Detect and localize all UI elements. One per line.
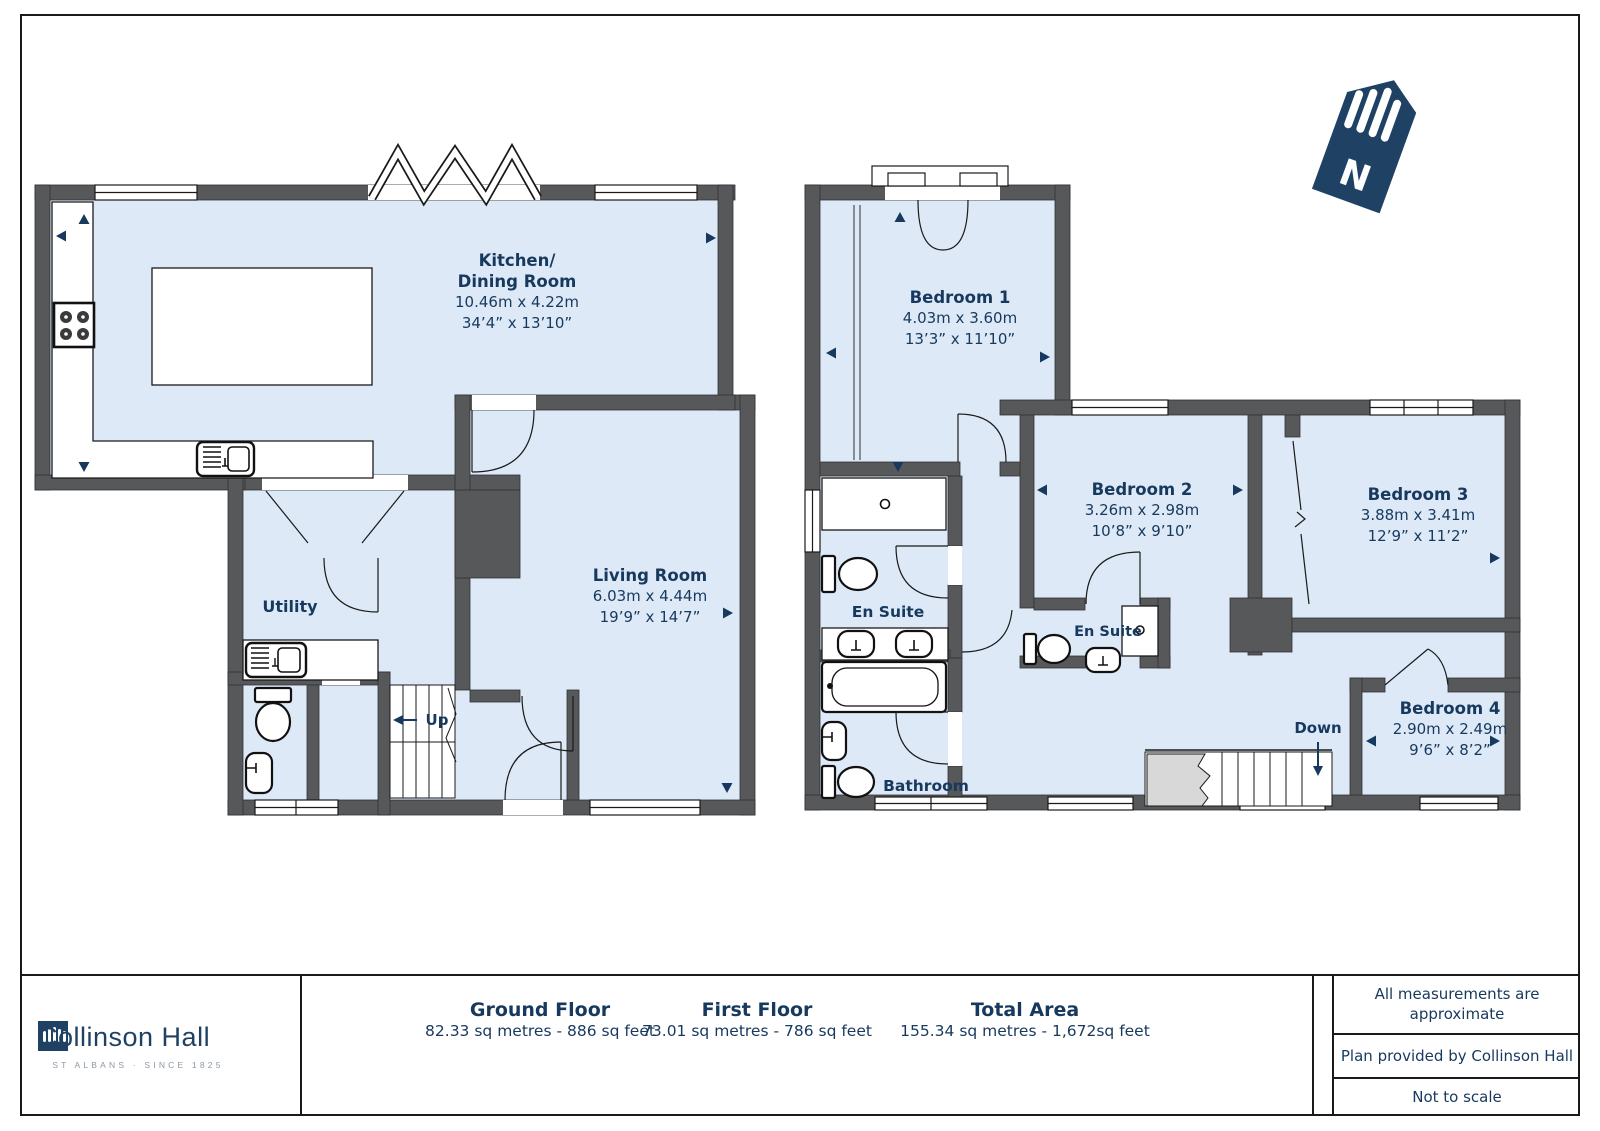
brand-tagline: ST ALBANS · SINCE 1825 (40, 1060, 236, 1070)
bedroom4-label: Bedroom 4 2.90m x 2.49m 9’6” x 8’2” (1340, 698, 1560, 761)
room-name: Bedroom 3 (1308, 484, 1528, 505)
room-dims-metric: 3.88m x 3.41m (1308, 505, 1528, 526)
ensuite1-label: En Suite (828, 603, 948, 621)
room-dims-imperial: 34’4” x 13’10” (407, 313, 627, 334)
window-icon (1370, 400, 1473, 415)
room-dims-imperial: 9’6” x 8’2” (1340, 740, 1560, 761)
window-icon (1048, 797, 1133, 810)
window-icon (590, 800, 700, 815)
room-name: Kitchen/ (407, 250, 627, 271)
chimney-block (455, 490, 520, 578)
note-provider: Plan provided by Collinson Hall (1334, 1035, 1580, 1079)
kitchen-island (152, 268, 372, 385)
room-dims-imperial: 10’8” x 9’10” (1032, 521, 1252, 542)
room-dims-metric: 3.26m x 2.98m (1032, 500, 1252, 521)
toilet-icon (255, 688, 291, 741)
room-dims-imperial: 13’3” x 11’10” (850, 329, 1070, 350)
up-label: Up (420, 711, 454, 729)
area-value: 73.01 sq metres - 786 sq feet (627, 1021, 887, 1042)
note-measurements: All measurements are approximate (1334, 974, 1580, 1035)
room-name: Living Room (540, 565, 760, 586)
floorplan-page: N Kitchen/ Dining Room 10.46m x 4.22m 34… (0, 0, 1600, 1131)
floorplan-drawing: N (0, 0, 1600, 1131)
room-dims-metric: 2.90m x 2.49m (1340, 719, 1560, 740)
room-name: Bedroom 4 (1340, 698, 1560, 719)
bedroom3-label: Bedroom 3 3.88m x 3.41m 12’9” x 11’2” (1308, 484, 1528, 547)
ground-floor-plan (35, 152, 755, 815)
room-name: Dining Room (407, 271, 627, 292)
bath-icon (822, 662, 946, 712)
footer-notes: All measurements are approximate Plan pr… (1332, 974, 1580, 1116)
down-label: Down (1288, 719, 1348, 737)
washer-sink-icon (246, 643, 306, 677)
bedroom1-label: Bedroom 1 4.03m x 3.60m 13’3” x 11’10” (850, 287, 1070, 350)
window-icon (1420, 797, 1498, 810)
room-name: Bedroom 2 (1032, 479, 1252, 500)
brand-name: Collinson Hall (38, 1022, 210, 1053)
total-area: Total Area 155.34 sq metres - 1,672sq fe… (895, 999, 1155, 1042)
toilet-icon (822, 556, 877, 592)
footer-divider-left (300, 974, 302, 1116)
room-name: Bedroom 1 (850, 287, 1070, 308)
room-dims-imperial: 12’9” x 11’2” (1308, 526, 1528, 547)
window-icon (875, 797, 987, 810)
bathroom-label: Bathroom (866, 777, 986, 795)
room-dims-metric: 6.03m x 4.44m (540, 586, 760, 607)
basin-icon (1086, 648, 1120, 672)
stairs-down (1145, 742, 1332, 806)
shower-icon (822, 478, 946, 530)
ensuite2-label: En Suite (1048, 624, 1168, 640)
sink-icon (197, 442, 254, 476)
hob-icon (54, 303, 94, 347)
basin-icon (896, 631, 932, 657)
basin-icon (246, 753, 272, 793)
area-title: Total Area (895, 999, 1155, 1021)
area-title: First Floor (627, 999, 887, 1021)
area-value: 155.34 sq metres - 1,672sq feet (895, 1021, 1155, 1042)
basin-icon (822, 722, 846, 760)
basin-icon (838, 631, 874, 657)
room-dims-imperial: 19’9” x 14’7” (540, 607, 760, 628)
window-icon (255, 800, 338, 815)
window-icon (805, 490, 820, 552)
window-icon (1072, 400, 1168, 415)
utility-label: Utility (230, 597, 350, 616)
north-arrow-icon: N (1312, 67, 1424, 214)
footer-divider-right (1312, 974, 1314, 1116)
first-floor-area: First Floor 73.01 sq metres - 786 sq fee… (627, 999, 887, 1042)
living-room-label: Living Room 6.03m x 4.44m 19’9” x 14’7” (540, 565, 760, 628)
room-dims-metric: 4.03m x 3.60m (850, 308, 1070, 329)
window-icon (95, 185, 197, 200)
room-dims-metric: 10.46m x 4.22m (407, 292, 627, 313)
kitchen-label: Kitchen/ Dining Room 10.46m x 4.22m 34’4… (407, 250, 627, 334)
window-icon (595, 185, 697, 200)
stairs-up (390, 685, 456, 798)
bedroom2-label: Bedroom 2 3.26m x 2.98m 10’8” x 9’10” (1032, 479, 1252, 542)
note-scale: Not to scale (1334, 1079, 1580, 1114)
